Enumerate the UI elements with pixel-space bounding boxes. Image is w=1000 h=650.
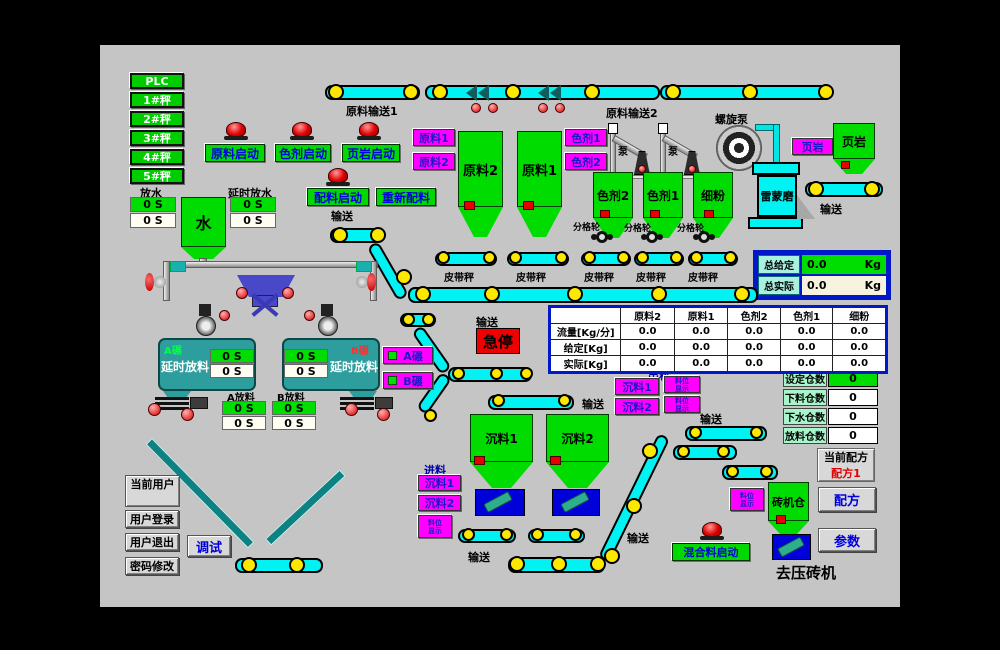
distribution-pipe [163, 261, 378, 268]
yuanliao1-gate-button[interactable]: 原料1 [413, 129, 455, 146]
chenliao2-out-button[interactable]: 沉料2 [615, 398, 659, 415]
conveyor-roller [689, 426, 702, 439]
scale-4-button[interactable]: 4#秤 [130, 149, 184, 165]
conveyor-roller [808, 181, 824, 197]
shusong-label-5: 输送 [468, 549, 490, 565]
user-login-button[interactable]: 用户登录 [125, 510, 179, 528]
belt-arrow-icon [538, 85, 549, 101]
yuanliao2-level-sensor [464, 201, 475, 210]
current-recipe-value: 配方1 [818, 465, 874, 481]
pump-pipe [773, 124, 780, 165]
shusong-label-4: 输送 [582, 396, 604, 412]
conveyor-roller [584, 84, 600, 100]
scale-5-button[interactable]: 5#秤 [130, 168, 184, 184]
pidaicheng-label: 皮带秤 [444, 269, 474, 284]
table-header [550, 307, 621, 324]
hunheliao-alarm-lamp-icon [702, 522, 722, 537]
cell: 0.0 [674, 356, 728, 373]
conveyor-roller [760, 465, 773, 478]
current-user-box: 当前用户 [125, 475, 180, 507]
chenliao1-funnel [470, 462, 533, 488]
seji1-level-sensor [650, 210, 660, 218]
fangshui-act-timer: 0 S [130, 213, 176, 228]
peiliao-alarm-lamp-icon [328, 168, 348, 183]
tank-a-delay-label: 延时放料 [161, 358, 209, 375]
raymond-mill: 雷蒙磨 [757, 175, 797, 217]
conveyor-roller [551, 556, 567, 572]
tank-a-select-button[interactable]: A碾 [383, 347, 433, 364]
tiny-label-bottom: 显示 [740, 500, 754, 508]
fengelun-label: 分格轮 [573, 220, 600, 233]
beng-label: 泵 [668, 143, 678, 158]
cell: 0.0 [780, 340, 833, 356]
conveyor-roller [734, 286, 750, 302]
total-actual-number: 0.0 [807, 279, 827, 292]
conveyor-roller [724, 251, 737, 264]
shusong-label-2: 输送 [820, 201, 842, 217]
conveyor-roller [717, 445, 730, 458]
conveyor-roller [690, 251, 703, 264]
current-recipe-box: 当前配方 配方1 [817, 448, 875, 482]
conveyor-roller [490, 367, 503, 380]
conveyor-roller [665, 84, 681, 100]
hunheliao-start-button[interactable]: 混合料启动 [672, 543, 750, 561]
yeyan-level-sensor [841, 161, 850, 169]
tank-a-label: A碾 [164, 342, 182, 357]
mill-chute [797, 195, 815, 219]
tank-a-select-label: A碾 [403, 348, 423, 364]
seji2-gate-button[interactable]: 色剂2 [565, 153, 607, 170]
conveyor-roller [328, 84, 344, 100]
seji2-hopper: 色剂2 [593, 172, 633, 218]
seji1-gate-button[interactable]: 色剂1 [565, 129, 607, 146]
conveyor-roller [864, 181, 880, 197]
level-display-button[interactable]: 料位显示 [418, 515, 452, 538]
indicator-dot [471, 103, 481, 113]
pidaicheng-label: 皮带秤 [688, 269, 718, 284]
current-user-label: 当前用户 [126, 476, 179, 492]
table-row: 流量[Kg/分] 0.0 0.0 0.0 0.0 0.0 [550, 324, 887, 340]
beng-label: 泵 [618, 143, 628, 158]
hmi-screen: { "plc_panel": {"items": ["PLC", "1#秤", … [0, 0, 1000, 650]
total-given-number: 0.0 [807, 258, 827, 271]
tank-b-select-button[interactable]: B碾 [383, 372, 433, 389]
table-row: 给定[Kg] 0.0 0.0 0.0 0.0 0.0 [550, 340, 887, 356]
yuanliao-start-button[interactable]: 原料启动 [205, 144, 265, 162]
tiny-label-top: 料位 [428, 519, 442, 527]
conveyor-roller [569, 528, 582, 541]
emergency-stop-button[interactable]: 急停 [476, 328, 520, 354]
zhuanjicang-level-sensor [776, 515, 786, 524]
conveyor-roller [567, 286, 583, 302]
chute-right [265, 469, 346, 545]
zhuanjicang-valve [772, 534, 811, 560]
yeyan-hopper: 页岩 [833, 123, 875, 159]
yuanliao2-gate-button[interactable]: 原料2 [413, 153, 455, 170]
indicator-dot [377, 408, 390, 421]
conveyor-top-2-label: 原料输送2 [606, 105, 658, 121]
chenliao1-out-button[interactable]: 沉料1 [615, 378, 659, 395]
conveyor-roller [241, 557, 257, 573]
tank-b-motor-icon [318, 304, 336, 336]
checkbox-icon [388, 376, 397, 385]
chenliao1-hopper: 沉料1 [470, 414, 533, 462]
params-button[interactable]: 参数 [818, 528, 876, 552]
yuanliao1-funnel [517, 207, 562, 237]
xifen-level-sensor [704, 210, 714, 218]
indicator-dot [555, 103, 565, 113]
a-fangliao-act-timer: 0 S [222, 416, 266, 430]
table-row: 实际[Kg] 0.0 0.0 0.0 0.0 0.0 [550, 356, 887, 373]
conveyor-roller [332, 227, 348, 243]
indicator-dot [538, 103, 548, 113]
yanshi-fangshui-act-timer: 0 S [230, 213, 276, 228]
indicator-dot [148, 403, 161, 416]
indicator-dot [282, 287, 294, 299]
conveyor-roller [742, 84, 758, 100]
tank-b-label: B碾 [351, 342, 369, 357]
totals-panel: 总给定 0.0 Kg 总实际 0.0 Kg [753, 250, 891, 300]
pipe-connector [356, 261, 372, 272]
current-recipe-label: 当前配方 [818, 449, 874, 465]
conveyor-roller [520, 367, 533, 380]
total-given-unit: Kg [865, 258, 881, 271]
zhuanjicang-hopper: 砖机仓 [768, 482, 809, 521]
conveyor-roller [677, 445, 690, 458]
seji2-level-sensor [600, 210, 610, 218]
yuanliao2-hopper: 原料2 [458, 131, 503, 207]
quyazhuanji-label: 去压砖机 [776, 562, 836, 583]
zhuanjicang-funnel [768, 521, 809, 535]
valve-icon [154, 276, 166, 288]
recipe-button[interactable]: 配方 [818, 487, 876, 512]
conveyor-roller [604, 548, 620, 564]
conveyor-top-1-label: 原料输送1 [346, 103, 398, 119]
conveyor-roller [415, 286, 431, 302]
a-fangliao-set-timer: 0 S [222, 401, 266, 415]
indicator-dot [236, 287, 248, 299]
chenliao2-funnel [546, 462, 609, 488]
bin-water-value: 0 [828, 408, 878, 425]
yuanliao2-funnel [458, 207, 503, 237]
conveyor-roller [424, 409, 437, 422]
cell: 0.0 [621, 356, 675, 373]
indicator-dot [181, 408, 194, 421]
bin-water-label: 下水仓数 [783, 408, 827, 425]
plc-button[interactable]: PLC [130, 73, 184, 89]
indicator-dot [219, 310, 230, 321]
row-label: 给定[Kg] [550, 340, 621, 356]
belt-arrow-icon [478, 85, 489, 101]
rotary-valve-icon [698, 231, 710, 243]
chenliao2-in-button[interactable]: 沉料2 [418, 495, 461, 511]
conveyor-roller [651, 286, 667, 302]
bin-release-label: 放料仓数 [783, 427, 827, 444]
mill-top [752, 162, 800, 175]
bin-release-value: 0 [828, 427, 878, 444]
tank-b-delay-label: 延时放料 [330, 358, 378, 375]
chenliao1-level-sensor [474, 456, 485, 465]
conveyor-roller [558, 394, 571, 407]
cell: 0.0 [833, 340, 887, 356]
cell: 0.0 [674, 340, 728, 356]
pidaicheng-label: 皮带秤 [516, 269, 546, 284]
rotary-valve-icon [646, 231, 658, 243]
seji-start-button[interactable]: 色剂启动 [275, 144, 331, 162]
bin-down-label: 下料仓数 [783, 389, 827, 406]
scale-1-button[interactable]: 1#秤 [130, 92, 184, 108]
conveyor-roller [555, 251, 568, 264]
yuanliao1-level-sensor [523, 201, 534, 210]
bin-down-value: 0 [828, 389, 878, 406]
scale-2-button[interactable]: 2#秤 [130, 111, 184, 127]
yuanliao-alarm-lamp-icon [226, 122, 246, 137]
conveyor-roller [636, 251, 649, 264]
table-header: 原料1 [674, 307, 728, 324]
b-fangliao-set-timer: 0 S [272, 401, 316, 415]
conveyor-roller [505, 84, 521, 100]
conveyor-roller [617, 251, 630, 264]
tiny-label-bottom: 显示 [675, 405, 689, 413]
pidaicheng-label: 皮带秤 [584, 269, 614, 284]
conveyor-roller [484, 286, 500, 302]
cell: 0.0 [728, 324, 781, 340]
conveyor-roller [726, 465, 739, 478]
user-logout-button[interactable]: 用户退出 [125, 533, 179, 551]
mill-base [748, 217, 803, 229]
yeyan-start-button[interactable]: 页岩启动 [342, 144, 400, 162]
cell: 0.0 [833, 356, 887, 373]
tiny-label-top: 料位 [740, 492, 754, 500]
cell: 0.0 [674, 324, 728, 340]
total-given-value: 0.0 Kg [802, 255, 886, 274]
cell: 0.0 [780, 324, 833, 340]
conveyor-roller [402, 313, 415, 326]
total-actual-label: 总实际 [758, 276, 800, 295]
tank-a-discharge-box [190, 397, 208, 409]
belt-arrow-icon [466, 85, 477, 101]
tank-a-set-timer: 0 S [210, 349, 254, 363]
chenliao2-valve [552, 489, 600, 516]
yuanliao1-hopper: 原料1 [517, 131, 562, 207]
total-actual-unit: Kg [865, 279, 881, 292]
total-actual-value: 0.0 Kg [802, 276, 886, 295]
table-header: 原料2 [621, 307, 675, 324]
shusong-label-1: 输送 [331, 208, 353, 224]
tiny-label-top: 料位 [675, 397, 689, 405]
hmi-panel: PLC 1#秤 2#秤 3#秤 4#秤 5#秤 放水 0 S 0 S 水 延时放… [100, 45, 900, 607]
valve-icon [145, 273, 154, 291]
conveyor-roller [531, 528, 544, 541]
conveyor-roller [462, 528, 475, 541]
conveyor-roller [403, 84, 419, 100]
cell: 0.0 [621, 340, 675, 356]
total-given-label: 总给定 [758, 255, 800, 274]
chenliao1-in-button[interactable]: 沉料1 [418, 475, 461, 491]
indicator-dot [488, 103, 498, 113]
conveyor-roller [289, 557, 305, 573]
tank-a-motor-icon [196, 304, 214, 336]
conveyor-roller [396, 269, 412, 285]
conveyor-roller [483, 251, 496, 264]
table-header: 细粉 [833, 307, 887, 324]
peiliao-start-button[interactable]: 配料启动 [307, 188, 369, 206]
table-header: 色剂2 [728, 307, 781, 324]
yeyan-hopper-funnel [833, 159, 875, 174]
conveyor-roller [818, 84, 834, 100]
conveyor-roller [452, 367, 465, 380]
conveyor-main [408, 287, 758, 303]
conveyor-roller [509, 556, 525, 572]
shusong-label-6: 输送 [627, 530, 649, 546]
cell: 0.0 [728, 340, 781, 356]
shusong-label-7: 输送 [700, 411, 722, 427]
indicator-dot [345, 403, 358, 416]
row-label: 流量[Kg/分] [550, 324, 621, 340]
conveyor-roller [500, 528, 513, 541]
conveyor-roller [370, 227, 386, 243]
valve-icon [367, 273, 376, 291]
conveyor-roller [583, 251, 596, 264]
conveyor-roller [750, 426, 763, 439]
b-fangliao-act-timer: 0 S [272, 416, 316, 430]
tiny-label-bottom: 显示 [428, 527, 442, 535]
cell: 0.0 [728, 356, 781, 373]
chongxin-peiliao-button[interactable]: 重新配料 [376, 188, 436, 206]
cell: 0.0 [833, 324, 887, 340]
weighing-table: 原料2 原料1 色剂2 色剂1 细粉 流量[Kg/分] 0.0 0.0 0.0 … [548, 305, 888, 374]
belt-arrow-icon [550, 85, 561, 101]
scale-3-button[interactable]: 3#秤 [130, 130, 184, 146]
row-label: 实际[Kg] [550, 356, 621, 373]
yeyan-gate-button[interactable]: 页岩 [792, 138, 833, 155]
tank-b-act-timer: 0 S [284, 364, 328, 378]
level-display-button[interactable]: 料位显示 [664, 376, 700, 393]
water-tank: 水 [181, 197, 226, 247]
password-change-button[interactable]: 密码修改 [125, 557, 179, 575]
conveyor-roller [509, 251, 522, 264]
tank-b-select-label: B碾 [403, 373, 422, 389]
conveyor-roller [492, 394, 505, 407]
tank-b-set-timer: 0 S [284, 349, 328, 363]
tank-a-act-timer: 0 S [210, 364, 254, 378]
conveyor-roller [432, 84, 448, 100]
debug-button[interactable]: 调试 [187, 535, 231, 557]
chenliao1-valve [475, 489, 525, 516]
seji-alarm-lamp-icon [292, 122, 312, 137]
level-display-button[interactable]: 料位显示 [664, 396, 700, 413]
table-header-row: 原料2 原料1 色剂2 色剂1 细粉 [550, 307, 887, 324]
fangshui-set-timer: 0 S [130, 197, 176, 212]
pidaicheng-label: 皮带秤 [636, 269, 666, 284]
conveyor-roller [670, 251, 683, 264]
tiny-label-bottom: 显示 [675, 385, 689, 393]
seji1-hopper: 色剂1 [643, 172, 683, 218]
cell: 0.0 [780, 356, 833, 373]
conveyor-roller [642, 443, 658, 459]
conveyor-roller [422, 313, 435, 326]
conveyor-roller [626, 498, 642, 514]
checkbox-icon [388, 351, 397, 360]
chenliao2-hopper: 沉料2 [546, 414, 609, 462]
yeyan-alarm-lamp-icon [359, 122, 379, 137]
yanshi-fangshui-set-timer: 0 S [230, 197, 276, 212]
conveyor-roller [437, 251, 450, 264]
tiny-label-top: 料位 [675, 377, 689, 385]
table-header: 色剂1 [780, 307, 833, 324]
pipe-connector [170, 261, 186, 272]
rotary-valve-icon [596, 231, 608, 243]
level-display-button[interactable]: 料位显示 [730, 488, 764, 511]
cell: 0.0 [621, 324, 675, 340]
indicator-dot [304, 310, 315, 321]
chenliao2-level-sensor [550, 456, 561, 465]
